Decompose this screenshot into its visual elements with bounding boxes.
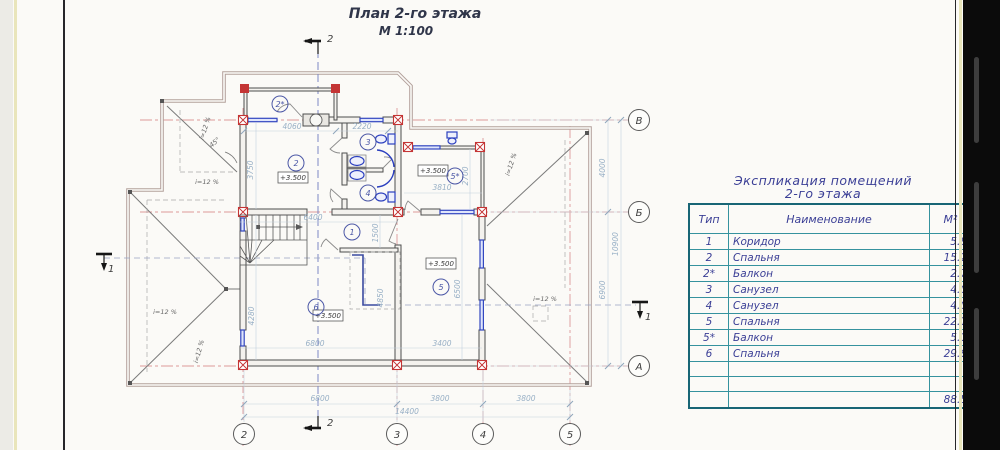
angle-45-arc bbox=[225, 152, 237, 163]
sheet-border-left bbox=[63, 0, 65, 450]
room-circle-2: 2 bbox=[293, 159, 298, 168]
table-row: 6 Спальня 29.6 bbox=[689, 346, 972, 362]
slope-label-5: i=12 % bbox=[504, 152, 519, 177]
cell-type: 2 bbox=[689, 250, 729, 266]
room-circle-6: 6 bbox=[313, 303, 318, 312]
slope-label-3: i=12 % bbox=[153, 308, 177, 316]
staircase bbox=[240, 215, 307, 265]
elevation-room5: +3.500 bbox=[428, 260, 454, 268]
axis-bubble-5: 5 bbox=[567, 430, 573, 441]
axis-bubble-b: Б bbox=[636, 208, 643, 219]
section-mark-2-top: 2 bbox=[327, 34, 333, 45]
dim-3800-a: 3800 bbox=[430, 394, 449, 403]
axis-bubble-3: 3 bbox=[394, 430, 400, 441]
dim-6800-interior: 6800 bbox=[305, 339, 324, 348]
table-empty-row bbox=[689, 362, 972, 377]
duct-dashed-box bbox=[350, 252, 400, 309]
cell-name: Санузел bbox=[729, 282, 930, 298]
table-empty-row bbox=[689, 377, 972, 392]
plan-title: План 2-го этажа bbox=[349, 6, 482, 22]
table-header-row: Тип Наименование М² bbox=[689, 204, 972, 234]
section-mark-1-right: 1 bbox=[645, 312, 651, 323]
cell-name: Спальня bbox=[729, 250, 930, 266]
dim-4850: 4850 bbox=[376, 288, 385, 307]
room-schedule: Экспликация помещений 2-го этажа Тип Наи… bbox=[688, 174, 958, 409]
cell-type: 5* bbox=[689, 330, 729, 346]
room-circle-5b: 5* bbox=[450, 172, 459, 181]
slope-label-2: i=12 % bbox=[195, 178, 219, 186]
scrollbar-segment[interactable] bbox=[974, 182, 979, 273]
elevation-balcony5: +3.500 bbox=[420, 167, 446, 175]
cell-name: Балкон bbox=[729, 330, 930, 346]
scrollbar-segment[interactable] bbox=[974, 308, 979, 380]
sheet-border-right bbox=[955, 0, 956, 450]
section-lines bbox=[104, 50, 636, 424]
dim-14400: 14400 bbox=[395, 407, 419, 416]
dim-3400: 3400 bbox=[432, 339, 451, 348]
windows bbox=[241, 118, 484, 346]
room-circle-1: 1 bbox=[349, 228, 354, 237]
table-row: 1 Коридор 5.8 bbox=[689, 234, 972, 250]
dim-3750: 3750 bbox=[246, 160, 255, 179]
table-row: 4 Санузел 4.0 bbox=[689, 298, 972, 314]
axis-bubble-a: А bbox=[635, 362, 643, 373]
angle-45-label: 45° bbox=[208, 136, 222, 150]
table-row: 2 Спальня 15.2 bbox=[689, 250, 972, 266]
cell-type: 6 bbox=[689, 346, 729, 362]
table-total-row: 88.5 bbox=[689, 392, 972, 409]
dim-6500: 6500 bbox=[453, 279, 462, 298]
cell-type: 1 bbox=[689, 234, 729, 250]
table-row: 2* Балкон 2.7 bbox=[689, 266, 972, 282]
dim-10900: 10900 bbox=[611, 232, 620, 256]
axis-grid-lines bbox=[140, 108, 648, 446]
dim-6400: 6400 bbox=[303, 213, 322, 222]
left-margin-strip bbox=[0, 0, 13, 450]
dim-2700: 2700 bbox=[461, 166, 470, 185]
cell-name: Санузел bbox=[729, 298, 930, 314]
axis-bubble-2: 2 bbox=[241, 430, 247, 441]
scrollbar-segment[interactable] bbox=[974, 57, 979, 143]
room-circle-4: 4 bbox=[365, 189, 370, 198]
roof-dashed-lines bbox=[147, 110, 565, 372]
dim-4060: 4060 bbox=[282, 122, 301, 131]
elevation-room2: +3.500 bbox=[280, 174, 306, 182]
table-row: 5* Балкон 5.1 bbox=[689, 330, 972, 346]
drawing-sheet: 6800 3800 3800 14400 4000 6900 10900 406… bbox=[0, 0, 1000, 450]
dim-2220: 2220 bbox=[352, 122, 371, 131]
table-title-line2: 2-го этажа bbox=[688, 187, 958, 200]
vent-circle bbox=[310, 114, 322, 126]
section-mark-1-left: 1 bbox=[108, 264, 114, 275]
right-black-strip bbox=[963, 0, 1000, 450]
section-mark-2-bottom: 2 bbox=[327, 418, 333, 429]
plan-scale: М 1:100 bbox=[379, 24, 433, 38]
table-row: 5 Спальня 22.1 bbox=[689, 314, 972, 330]
dim-3810: 3810 bbox=[432, 183, 451, 192]
cell-type: 5 bbox=[689, 314, 729, 330]
dim-4280: 4280 bbox=[247, 306, 256, 325]
header-type: Тип bbox=[689, 204, 729, 234]
header-name: Наименование bbox=[729, 204, 930, 234]
slope-label-4: i=12 % bbox=[192, 339, 206, 364]
cell-name: Балкон bbox=[729, 266, 930, 282]
slope-label-6: i=12 % bbox=[533, 295, 557, 303]
cell-name: Коридор bbox=[729, 234, 930, 250]
right-yellow-line bbox=[959, 0, 962, 450]
cell-name: Спальня bbox=[729, 346, 930, 362]
dim-6800-bottom: 6800 bbox=[310, 394, 329, 403]
cell-type: 4 bbox=[689, 298, 729, 314]
room-circle-3: 3 bbox=[365, 138, 370, 147]
room-circle-5: 5 bbox=[438, 283, 443, 292]
dim-3800-b: 3800 bbox=[516, 394, 535, 403]
dim-4000: 4000 bbox=[598, 158, 607, 177]
elevation-room6: +3.500 bbox=[315, 312, 341, 320]
dim-1500: 1500 bbox=[371, 223, 380, 242]
axis-bubble-v: В bbox=[636, 116, 643, 127]
axis-bubble-4: 4 bbox=[480, 430, 486, 441]
cell-name: Спальня bbox=[729, 314, 930, 330]
table-row: 3 Санузел 4.0 bbox=[689, 282, 972, 298]
cell-type: 2* bbox=[689, 266, 729, 282]
dim-6900: 6900 bbox=[598, 280, 607, 299]
cell-type: 3 bbox=[689, 282, 729, 298]
room-circle-2b: 2* bbox=[275, 100, 284, 109]
left-yellow-line bbox=[14, 0, 17, 450]
room-schedule-table: Тип Наименование М² 1 Коридор 5.8 2 Спал… bbox=[688, 203, 973, 409]
